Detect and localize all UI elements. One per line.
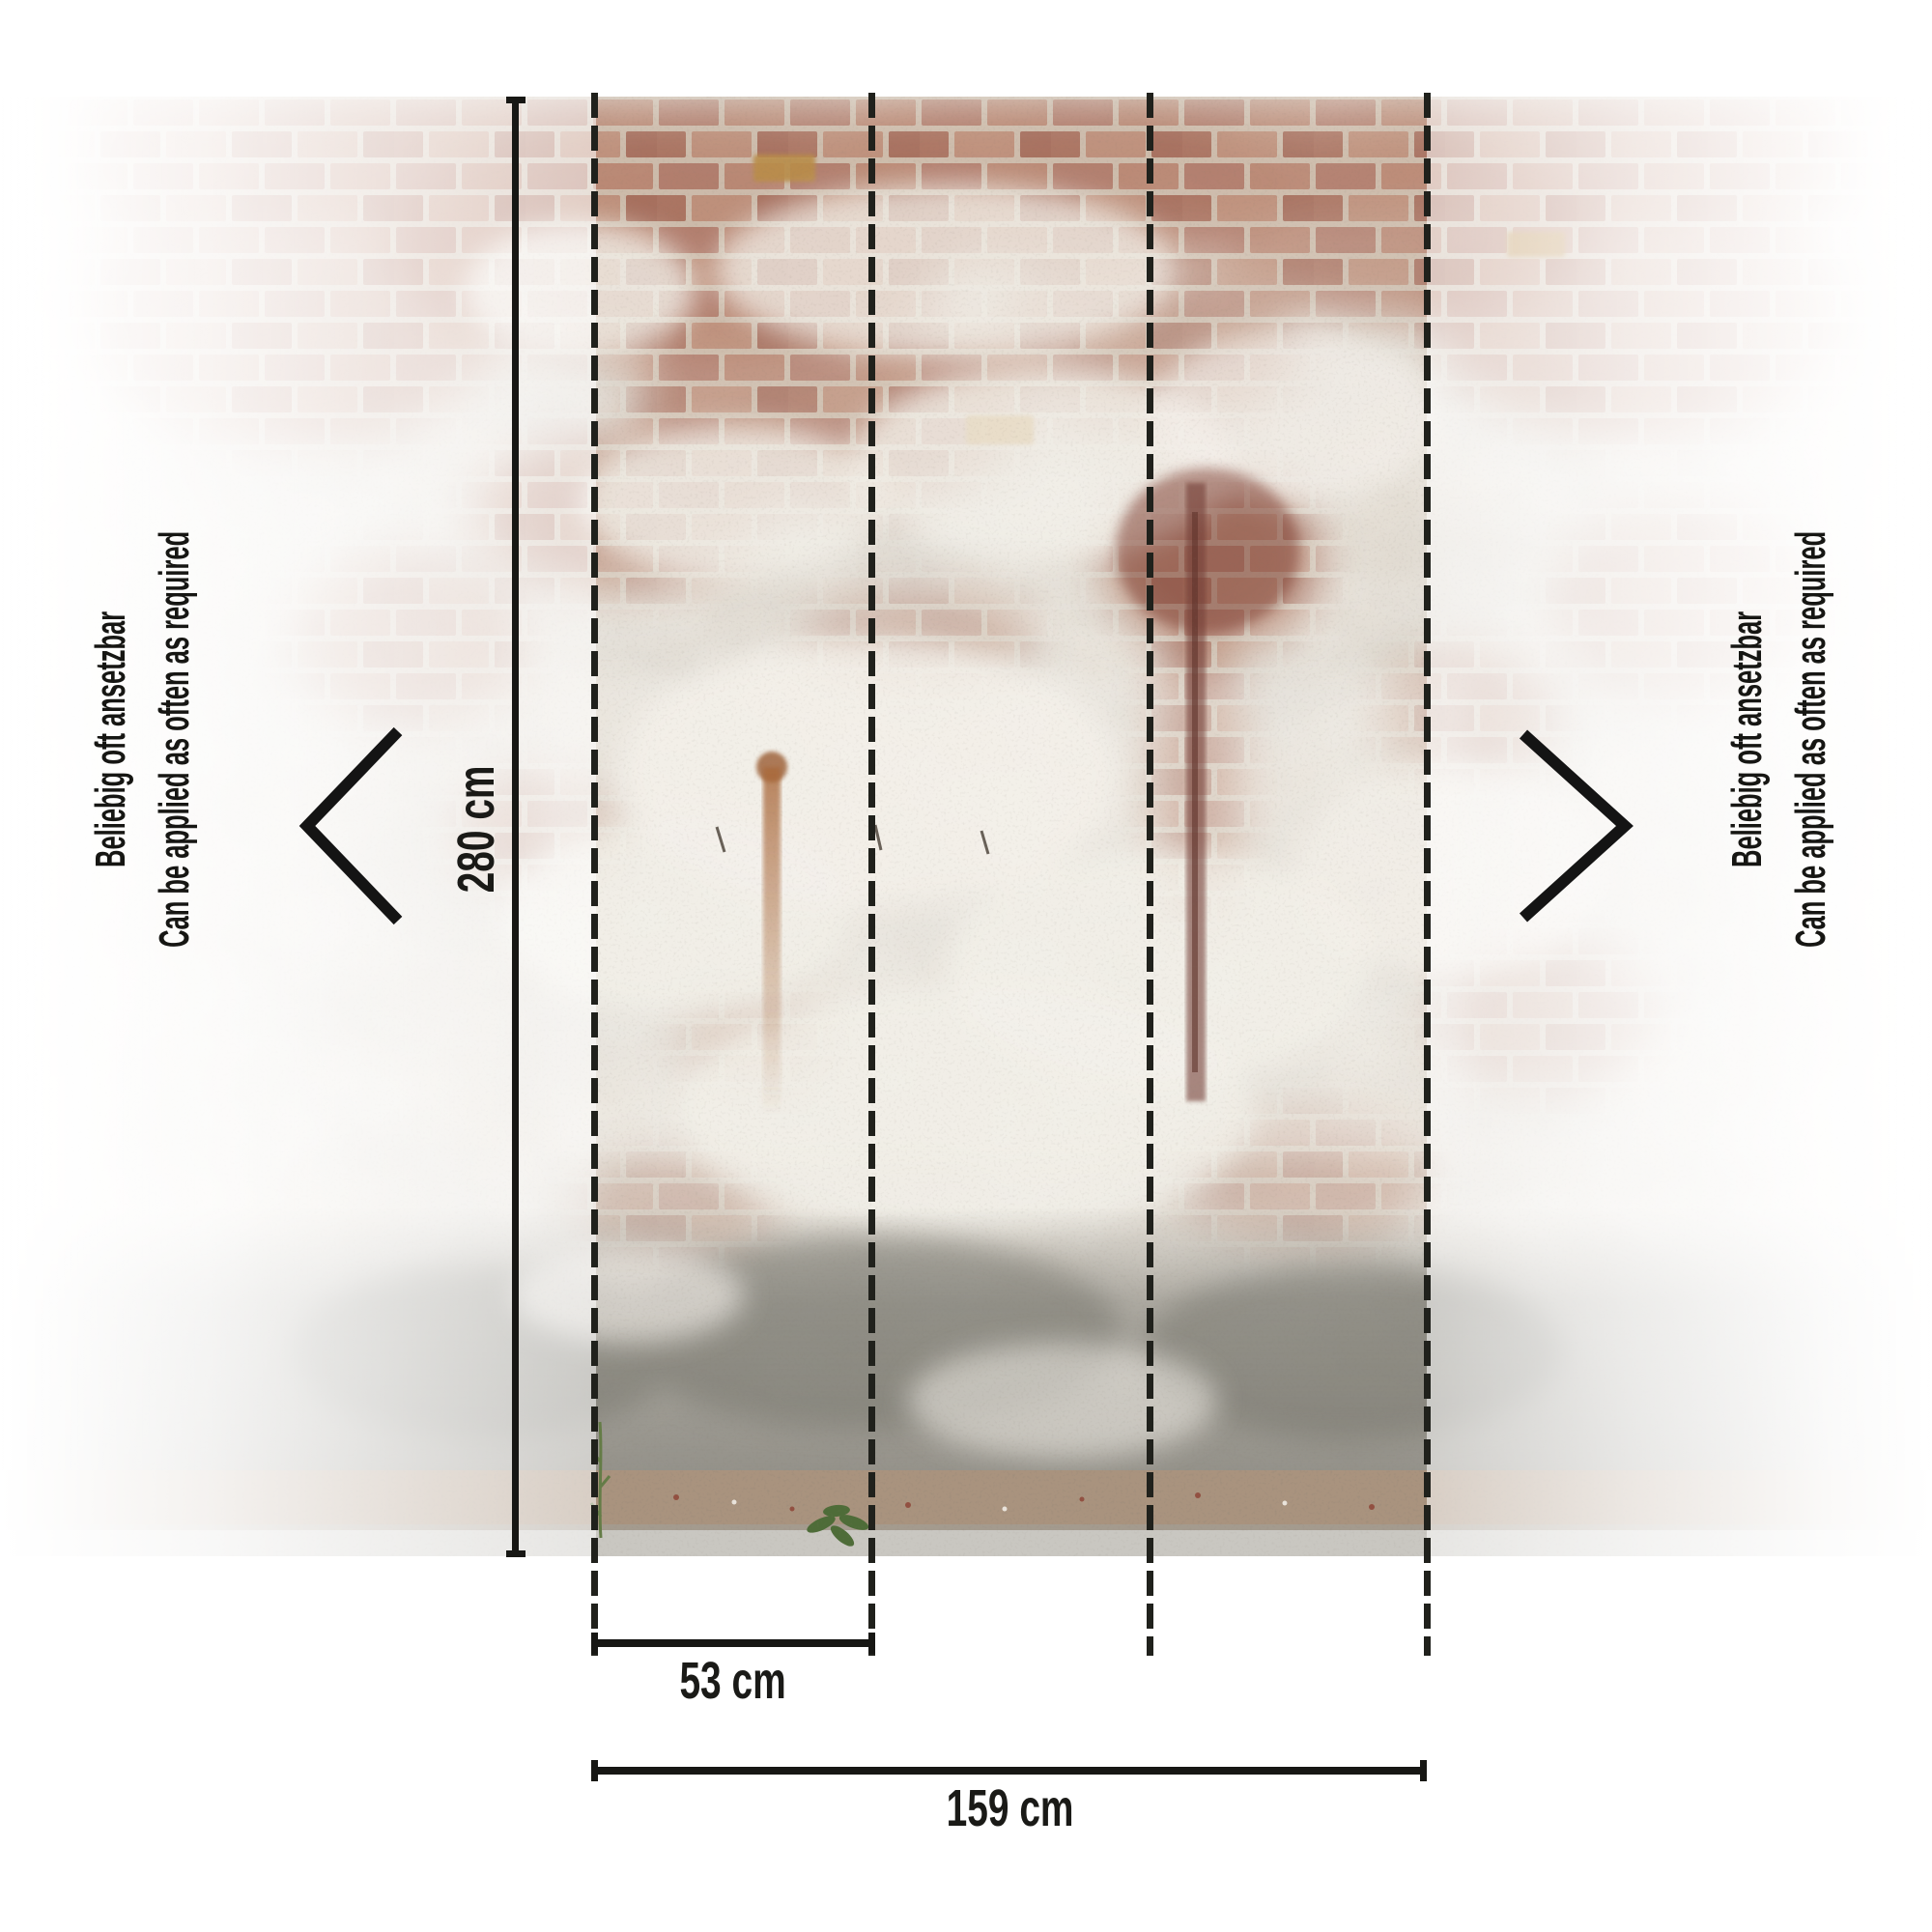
chevron-left-icon bbox=[290, 720, 415, 932]
total-width-dimension-label: 159 cm bbox=[866, 1781, 1155, 1835]
side-note-left: Beliebig oft ansetzbar Can be applied as… bbox=[79, 469, 207, 1009]
panel-seam-line-1 bbox=[591, 93, 598, 1656]
total-width-right-cap bbox=[1420, 1760, 1427, 1781]
panel-seam-line-2 bbox=[868, 93, 875, 1656]
side-note-right: Beliebig oft ansetzbar Can be applied as… bbox=[1716, 469, 1843, 1009]
height-dimension-bottom-cap bbox=[506, 1550, 526, 1557]
side-note-right-german: Beliebig oft ansetzbar bbox=[1716, 611, 1779, 867]
chevron-right-icon bbox=[1512, 720, 1637, 932]
total-width-left-cap bbox=[591, 1760, 598, 1781]
product-dimension-diagram: 280 cm 53 cm 159 cm Beliebig oft ansetzb… bbox=[0, 0, 1932, 1932]
height-dimension-line bbox=[512, 97, 519, 1557]
height-dimension-top-cap bbox=[506, 97, 526, 103]
panel-width-left-cap bbox=[591, 1633, 598, 1654]
panel-width-dimension-line bbox=[594, 1639, 872, 1647]
panel-seam-line-3 bbox=[1147, 93, 1153, 1656]
panel-width-dimension-label: 53 cm bbox=[588, 1654, 878, 1708]
side-note-left-english: Can be applied as often as required bbox=[143, 530, 207, 947]
height-dimension-label: 280 cm bbox=[449, 684, 503, 974]
total-width-dimension-line bbox=[594, 1767, 1427, 1775]
side-note-right-english: Can be applied as often as required bbox=[1779, 530, 1843, 947]
panel-seam-line-4 bbox=[1424, 93, 1431, 1656]
panel-width-right-cap bbox=[868, 1633, 875, 1654]
side-note-left-german: Beliebig oft ansetzbar bbox=[79, 611, 143, 867]
